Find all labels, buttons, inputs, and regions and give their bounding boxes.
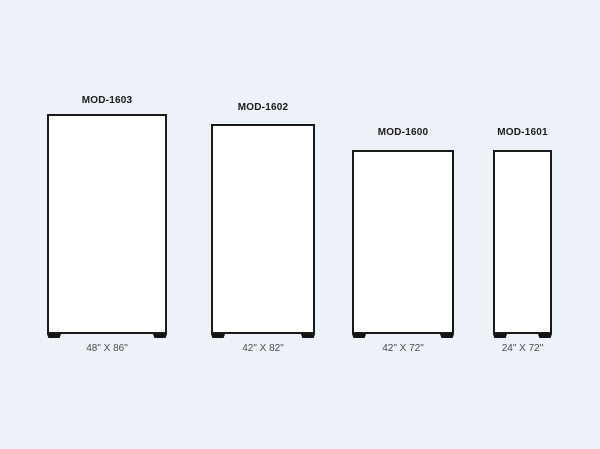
foot-glide-left [47, 334, 61, 338]
foot-glide-left [211, 334, 225, 338]
foot-glide-right [301, 334, 315, 338]
foot-glide-right [538, 334, 552, 338]
model-label: MOD-1603 [82, 95, 133, 106]
panel-mod-1601: MOD-1601 24" X 72" [493, 150, 552, 334]
model-label: MOD-1602 [238, 102, 289, 113]
panel-mod-1603: MOD-1603 48" X 86" [47, 114, 167, 334]
size-label: 42" X 82" [242, 343, 284, 354]
size-comparison-diagram: MOD-1603 48" X 86" MOD-1602 42" X 82" MO… [0, 0, 600, 449]
panel-mod-1600: MOD-1600 42" X 72" [352, 150, 454, 334]
foot-glide-left [493, 334, 507, 338]
foot-glide-right [153, 334, 167, 338]
foot-glide-left [352, 334, 366, 338]
model-label: MOD-1600 [378, 127, 429, 138]
model-label: MOD-1601 [497, 127, 548, 138]
panel-mod-1602: MOD-1602 42" X 82" [211, 124, 315, 334]
size-label: 48" X 86" [86, 343, 128, 354]
foot-glide-right [440, 334, 454, 338]
size-label: 42" X 72" [382, 343, 424, 354]
size-label: 24" X 72" [502, 343, 544, 354]
